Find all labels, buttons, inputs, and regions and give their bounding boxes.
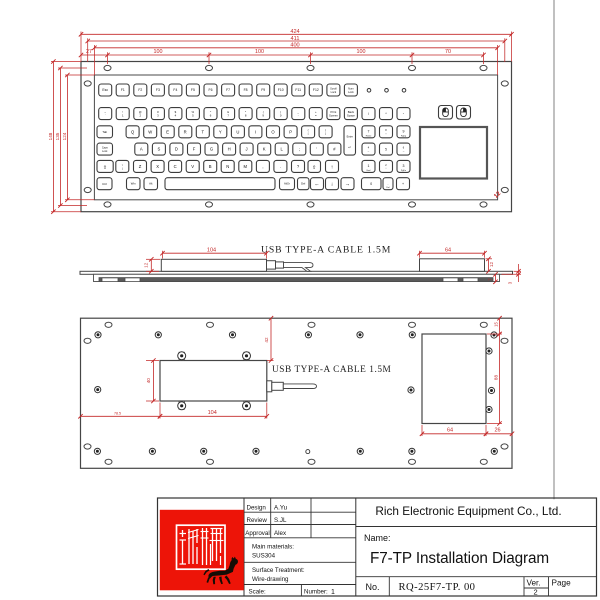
svg-text:Tab: Tab bbox=[102, 130, 107, 134]
svg-text:64: 64 bbox=[447, 427, 453, 433]
svg-text:F2: F2 bbox=[138, 88, 142, 92]
svg-text:↑: ↑ bbox=[331, 164, 334, 170]
svg-text:Esc: Esc bbox=[102, 88, 108, 92]
svg-text:X: X bbox=[156, 164, 159, 169]
svg-text:U: U bbox=[236, 129, 239, 134]
svg-text:G: G bbox=[210, 147, 213, 152]
svg-text:9: 9 bbox=[403, 129, 405, 133]
svg-text:F7-TP Installation Diagram: F7-TP Installation Diagram bbox=[370, 550, 549, 567]
svg-text:Approval: Approval bbox=[245, 530, 269, 537]
svg-text:B: B bbox=[209, 164, 212, 169]
svg-text:K: K bbox=[263, 147, 266, 152]
svg-text:/: / bbox=[368, 112, 369, 116]
svg-text:78.5: 78.5 bbox=[114, 412, 121, 416]
svg-text:0: 0 bbox=[370, 182, 372, 186]
svg-text:W: W bbox=[148, 129, 152, 134]
svg-text:PgUp: PgUp bbox=[401, 135, 407, 137]
svg-text:100: 100 bbox=[255, 49, 264, 55]
svg-text:Design: Design bbox=[247, 505, 267, 512]
svg-text:C: C bbox=[174, 164, 177, 169]
svg-text:,: , bbox=[262, 164, 263, 169]
svg-text:A: A bbox=[140, 147, 143, 152]
svg-text:Enter: Enter bbox=[347, 135, 353, 139]
svg-text:→: → bbox=[345, 182, 350, 188]
svg-text:15: 15 bbox=[493, 322, 498, 327]
svg-text:Wire-drawing: Wire-drawing bbox=[252, 576, 289, 583]
svg-text:→: → bbox=[402, 150, 405, 153]
svg-text:M: M bbox=[244, 164, 248, 169]
svg-text:Z: Z bbox=[139, 164, 142, 169]
svg-text:2: 2 bbox=[534, 588, 538, 597]
svg-text:J: J bbox=[246, 147, 248, 152]
svg-text:F12: F12 bbox=[313, 88, 319, 92]
svg-text:Home: Home bbox=[366, 135, 372, 137]
svg-text:424: 424 bbox=[290, 29, 299, 35]
svg-text:-: - bbox=[298, 114, 299, 118]
svg-text:Alex: Alex bbox=[274, 530, 287, 537]
svg-text:AltGr: AltGr bbox=[284, 182, 290, 186]
svg-text:↓: ↓ bbox=[331, 182, 334, 188]
svg-text:S.JL: S.JL bbox=[274, 517, 287, 524]
svg-text:Review: Review bbox=[247, 517, 268, 524]
svg-text:F6: F6 bbox=[209, 88, 213, 92]
svg-text:←: ← bbox=[314, 182, 319, 188]
svg-text:Lock: Lock bbox=[348, 90, 354, 94]
svg-text:No.: No. bbox=[366, 582, 380, 592]
svg-text:F5: F5 bbox=[191, 88, 195, 92]
svg-text:Del: Del bbox=[386, 187, 390, 189]
svg-text:26: 26 bbox=[494, 427, 500, 433]
svg-text:40: 40 bbox=[146, 378, 151, 384]
svg-text:Rich Electronic Equipment Co.,: Rich Electronic Equipment Co., Ltd. bbox=[375, 504, 561, 518]
svg-text:USB TYPE-A CABLE 1.5M: USB TYPE-A CABLE 1.5M bbox=[261, 245, 391, 256]
svg-text:Page: Page bbox=[552, 578, 572, 587]
svg-text:F4: F4 bbox=[173, 88, 177, 92]
svg-text:F8: F8 bbox=[244, 88, 248, 92]
svg-text:{: { bbox=[308, 128, 309, 132]
svg-text:1: 1 bbox=[368, 164, 370, 168]
svg-text:100: 100 bbox=[357, 49, 366, 55]
svg-text:Lock: Lock bbox=[331, 90, 337, 94]
svg-text:12: 12 bbox=[489, 262, 494, 268]
svg-text:A.Yu: A.Yu bbox=[274, 505, 288, 512]
svg-text:.: . bbox=[388, 181, 389, 185]
svg-text:Number:: Number: bbox=[304, 589, 328, 596]
svg-text:F7: F7 bbox=[226, 88, 230, 92]
svg-text:Win: Win bbox=[131, 182, 136, 186]
svg-text:+: + bbox=[402, 182, 404, 186]
svg-text:T: T bbox=[202, 129, 205, 134]
svg-text:7: 7 bbox=[368, 129, 370, 133]
svg-text:F3: F3 bbox=[156, 88, 160, 92]
svg-text:88: 88 bbox=[493, 375, 498, 381]
svg-text:Screen: Screen bbox=[329, 114, 338, 118]
svg-text:5: 5 bbox=[385, 147, 387, 151]
svg-text:64: 64 bbox=[445, 248, 451, 254]
svg-text:Name:: Name: bbox=[364, 533, 391, 543]
svg-text:F9: F9 bbox=[261, 88, 265, 92]
svg-text:Scale:: Scale: bbox=[249, 589, 266, 596]
svg-text:1: 1 bbox=[331, 589, 335, 596]
svg-text:D: D bbox=[175, 147, 178, 152]
svg-text:400: 400 bbox=[290, 43, 299, 49]
svg-text:SUS304: SUS304 bbox=[252, 552, 276, 559]
svg-text:Y: Y bbox=[219, 129, 222, 134]
svg-text:3: 3 bbox=[403, 164, 405, 168]
svg-text:104: 104 bbox=[208, 410, 217, 416]
svg-text:Ver.: Ver. bbox=[527, 578, 541, 587]
svg-text:⇧: ⇧ bbox=[312, 165, 316, 171]
svg-text:N: N bbox=[226, 164, 229, 169]
svg-text:;: ; bbox=[299, 147, 300, 152]
svg-text:42: 42 bbox=[264, 337, 269, 343]
svg-text:}: } bbox=[325, 128, 326, 132]
svg-text:Scroll: Scroll bbox=[330, 86, 337, 90]
svg-text:RQ-25F7-TP. 00: RQ-25F7-TP. 00 bbox=[399, 582, 476, 593]
svg-text:148: 148 bbox=[48, 132, 53, 140]
svg-text:.: . bbox=[280, 164, 281, 169]
svg-text:I: I bbox=[255, 129, 256, 134]
svg-text:100: 100 bbox=[154, 49, 163, 55]
svg-text:Surface Treatment:: Surface Treatment: bbox=[252, 567, 305, 574]
svg-text:←: ← bbox=[367, 150, 370, 153]
svg-text:PgDn: PgDn bbox=[401, 170, 407, 172]
svg-text:H: H bbox=[228, 147, 231, 152]
svg-text:`: ` bbox=[105, 114, 106, 118]
svg-text:411: 411 bbox=[291, 36, 300, 42]
svg-text:F: F bbox=[193, 147, 196, 152]
svg-text:E: E bbox=[166, 129, 169, 134]
svg-text:Space: Space bbox=[347, 114, 355, 118]
svg-text:F11: F11 bbox=[295, 88, 301, 92]
svg-text:F1: F1 bbox=[121, 88, 125, 92]
svg-text:S: S bbox=[158, 147, 161, 152]
svg-text:Lock: Lock bbox=[102, 150, 108, 153]
svg-text:70: 70 bbox=[445, 49, 451, 55]
svg-text:↵: ↵ bbox=[348, 146, 351, 150]
svg-text:P: P bbox=[289, 129, 292, 134]
svg-text:↑: ↑ bbox=[385, 133, 386, 136]
svg-text:Num: Num bbox=[348, 86, 353, 90]
svg-text:12: 12 bbox=[144, 262, 149, 268]
svg-text:Del: Del bbox=[301, 182, 306, 186]
svg-text:Main materials:: Main materials: bbox=[252, 543, 294, 550]
svg-text:⇧: ⇧ bbox=[103, 165, 107, 171]
svg-text:USB TYPE-A CABLE 1.5M: USB TYPE-A CABLE 1.5M bbox=[272, 365, 391, 375]
svg-text:104: 104 bbox=[207, 248, 216, 254]
svg-text:F10: F10 bbox=[278, 88, 284, 92]
svg-text:124: 124 bbox=[62, 132, 67, 140]
svg-text:V: V bbox=[191, 164, 194, 169]
svg-text:R: R bbox=[184, 129, 187, 134]
svg-text:135: 135 bbox=[55, 132, 60, 140]
svg-text:Alt: Alt bbox=[149, 182, 152, 186]
svg-text:↓: ↓ bbox=[385, 167, 386, 170]
svg-text:27: 27 bbox=[86, 49, 92, 55]
svg-text:Ctrl: Ctrl bbox=[102, 182, 107, 186]
